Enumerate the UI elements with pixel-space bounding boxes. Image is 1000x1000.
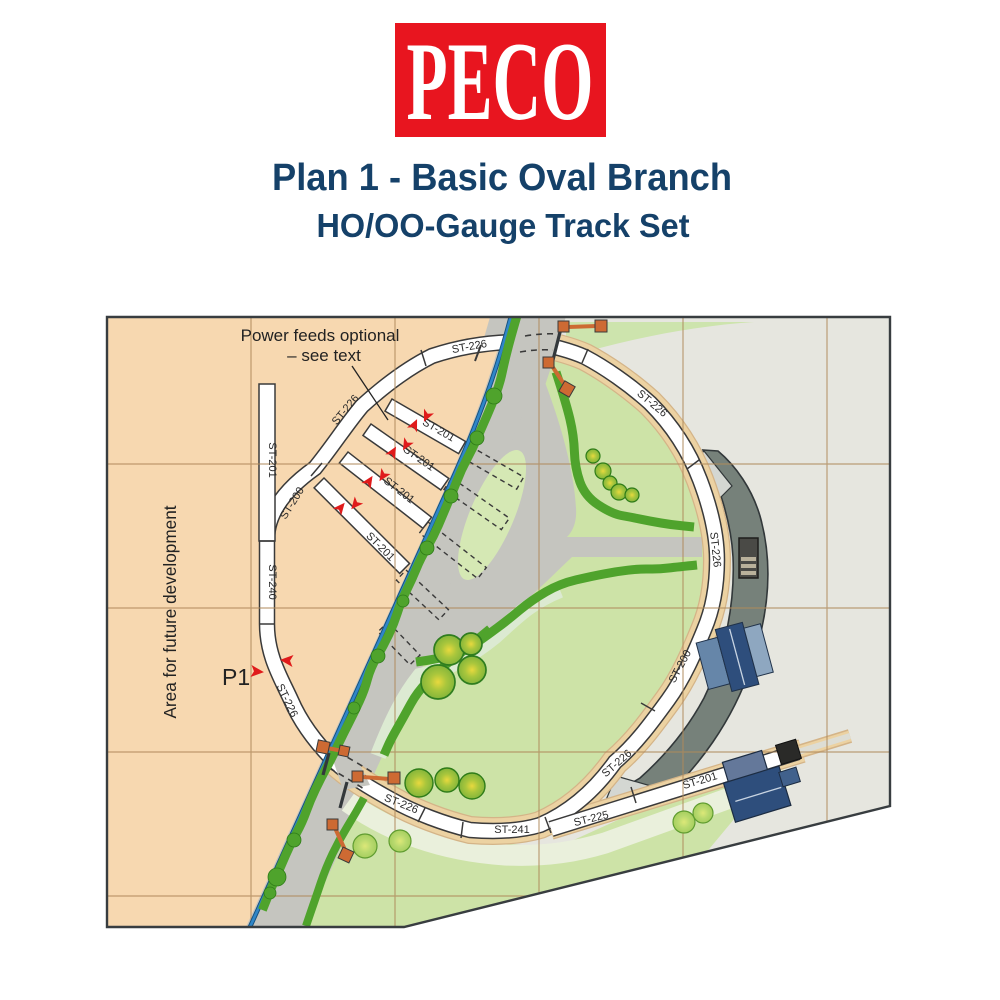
svg-text:Area for future development: Area for future development (160, 505, 180, 718)
svg-text:ST-240: ST-240 (266, 564, 278, 599)
svg-text:Power feeds optional: Power feeds optional (241, 326, 400, 345)
svg-text:HO/OO-Gauge Track Set: HO/OO-Gauge Track Set (317, 207, 690, 244)
svg-text:Plan 1 - Basic Oval Branch: Plan 1 - Basic Oval Branch (272, 157, 732, 199)
svg-text:P1: P1 (222, 664, 250, 690)
svg-text:ST-241: ST-241 (494, 824, 529, 836)
svg-text:– see text: – see text (287, 346, 361, 365)
svg-text:ST-201: ST-201 (266, 442, 278, 477)
svg-text:PECO: PECO (407, 20, 594, 144)
